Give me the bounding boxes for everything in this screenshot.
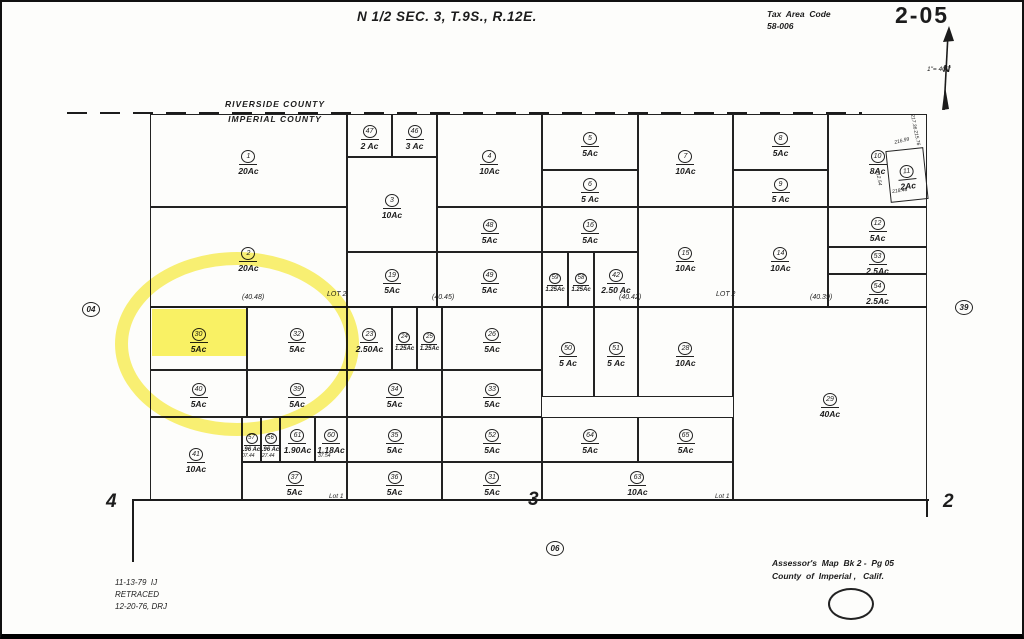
parcel-number: 1 bbox=[241, 150, 255, 163]
parcel-number: 11 bbox=[899, 164, 914, 178]
parcel-acres: 1.90Ac bbox=[284, 445, 311, 455]
parcel-acres: 1.25Ac bbox=[420, 346, 439, 352]
parcel-5: 55Ac bbox=[542, 114, 638, 170]
parcel-acres: 5 Ac bbox=[607, 358, 625, 368]
parcel-number: 15 bbox=[678, 247, 692, 260]
parcel-25: 251.25Ac bbox=[417, 307, 442, 370]
parcel-number: 10 bbox=[871, 150, 885, 163]
parcel-number: 63 bbox=[630, 471, 644, 484]
parcel-number: 37 bbox=[288, 471, 302, 484]
parcel-number: 61 bbox=[290, 429, 304, 442]
parcel-14: 1410Ac bbox=[733, 207, 828, 307]
parcel-acres: 10Ac bbox=[479, 166, 499, 176]
parcel-8: 85Ac bbox=[733, 114, 828, 170]
parcel-number: 36 bbox=[388, 471, 402, 484]
parcel-number: 12 bbox=[871, 217, 885, 230]
map-line bbox=[926, 499, 928, 517]
parcel-acres: 1.25Ac bbox=[571, 287, 590, 293]
parcel-acres: 5Ac bbox=[387, 487, 403, 497]
parcel-acres: 5Ac bbox=[870, 233, 886, 243]
parcel-acres: 5Ac bbox=[287, 487, 303, 497]
parcel-number: 29 bbox=[823, 393, 837, 406]
parcel-number: 23 bbox=[362, 328, 376, 341]
parcel-number: 49 bbox=[483, 269, 497, 282]
highlight-circle bbox=[115, 252, 359, 436]
parcel-64: 645Ac bbox=[542, 417, 638, 462]
parcel-acres: 5Ac bbox=[484, 344, 500, 354]
parcel-acres: 5Ac bbox=[582, 235, 598, 245]
parcel-number: 34 bbox=[388, 383, 402, 396]
parcel-number: 14 bbox=[773, 247, 787, 260]
assessor-map-page: N 1/2 SEC. 3, T.9S., R.12E. Tax Area Cod… bbox=[0, 0, 1024, 639]
parcel-31: 315Ac bbox=[442, 462, 542, 500]
retrace-notes: 11-13-79 IJ RETRACED 12-20-76, DRJ bbox=[115, 577, 167, 613]
parcel-3: 310Ac bbox=[347, 157, 437, 252]
map-label: Lot 1 bbox=[329, 494, 343, 501]
parcel-6: 65 Ac bbox=[542, 170, 638, 207]
parcel-acres: 5Ac bbox=[678, 445, 694, 455]
parcel-number: 16 bbox=[583, 219, 597, 232]
parcel-number: 9 bbox=[774, 178, 788, 191]
parcel-number: 64 bbox=[583, 429, 597, 442]
note-line-2: RETRACED bbox=[115, 590, 159, 599]
map-label: 37.54 bbox=[318, 454, 331, 459]
parcel-number: 42 bbox=[609, 269, 623, 282]
note-line-1: 11-13-79 IJ bbox=[115, 578, 157, 587]
parcel-36: 365Ac bbox=[347, 462, 442, 500]
parcel-number: 31 bbox=[485, 471, 499, 484]
parcel-34: 345Ac bbox=[347, 370, 442, 417]
parcel-48: 485Ac bbox=[437, 207, 542, 252]
parcel-number: 65 bbox=[679, 429, 693, 442]
parcel-number: 28 bbox=[678, 342, 692, 355]
credit-line-1: Assessor's Map Bk 2 - Pg 05 bbox=[772, 558, 894, 568]
parcel-acres: 2.5Ac bbox=[866, 296, 889, 306]
parcel-number: 26 bbox=[485, 328, 499, 341]
parcel-54: 542.5Ac bbox=[828, 274, 927, 307]
parcel-58: 581.25Ac bbox=[568, 252, 594, 307]
parcel-acres: 5Ac bbox=[582, 148, 598, 158]
parcel-number: 7 bbox=[678, 150, 692, 163]
parcel-acres: 5 Ac bbox=[581, 194, 599, 204]
parcel-acres: 10Ac bbox=[186, 464, 206, 474]
parcel-28: 2810Ac bbox=[638, 307, 733, 397]
parcel-acres: 10Ac bbox=[627, 487, 647, 497]
parcel-number: 52 bbox=[485, 429, 499, 442]
parcel-46: 463 Ac bbox=[392, 114, 437, 157]
stamp-ellipse bbox=[828, 588, 874, 620]
parcel-51: 515 Ac bbox=[594, 307, 638, 397]
parcel-63: 6310Ac bbox=[542, 462, 733, 500]
parcel-33: 335Ac bbox=[442, 370, 542, 417]
parcel-number: 46 bbox=[408, 125, 422, 138]
parcel-26: 265Ac bbox=[442, 307, 542, 370]
parcel-acres: 3 Ac bbox=[406, 141, 424, 151]
parcel-acres: 5Ac bbox=[482, 285, 498, 295]
map-label: 27.44 bbox=[262, 454, 275, 459]
parcel-9: 95 Ac bbox=[733, 170, 828, 207]
parcel-number: 59 bbox=[549, 273, 561, 284]
note-line-3: 12-20-76, DRJ bbox=[115, 602, 167, 611]
credit-line-2: County of Imperial , Calif. bbox=[772, 571, 884, 581]
parcel-number: 56 bbox=[265, 433, 277, 444]
map-label: (40.42) bbox=[619, 294, 641, 301]
parcel-number: 24 bbox=[398, 332, 410, 343]
parcel-acres: 10Ac bbox=[382, 210, 402, 220]
parcel-acres: 10Ac bbox=[675, 358, 695, 368]
parcel-number: 35 bbox=[388, 429, 402, 442]
parcel-number: 4 bbox=[482, 150, 496, 163]
parcel-acres: 5Ac bbox=[773, 148, 789, 158]
parcel-53: 532.5Ac bbox=[828, 247, 927, 274]
section-reference-06: 06 bbox=[546, 541, 564, 556]
parcel-number: 51 bbox=[609, 342, 623, 355]
map-line bbox=[132, 499, 134, 562]
parcel-19: 195Ac bbox=[347, 252, 437, 307]
section-reference-39: 39 bbox=[955, 300, 973, 315]
parcel-50: 505 Ac bbox=[542, 307, 594, 397]
map-label: LOT 2 bbox=[716, 291, 735, 298]
parcel-number: 50 bbox=[561, 342, 575, 355]
parcel-16: 165Ac bbox=[542, 207, 638, 252]
map-label: (40.45) bbox=[432, 294, 454, 301]
parcel-acres: 5 Ac bbox=[772, 194, 790, 204]
parcel-number: 58 bbox=[575, 273, 587, 284]
section-reference-04: 04 bbox=[82, 302, 100, 317]
parcel-59: 591.25Ac bbox=[542, 252, 568, 307]
parcel-24: 241.25Ac bbox=[392, 307, 417, 370]
parcel-acres: 40Ac bbox=[820, 409, 840, 419]
parcel-number: 60 bbox=[324, 429, 338, 442]
parcel-number: 48 bbox=[483, 219, 497, 232]
parcel-number: 3 bbox=[385, 194, 399, 207]
map-label: Lot 1 bbox=[715, 494, 729, 501]
parcel-12: 125Ac bbox=[828, 207, 927, 247]
parcel-65: 655Ac bbox=[638, 417, 733, 462]
parcel-acres: 1.25Ac bbox=[545, 287, 564, 293]
parcel-acres: 5Ac bbox=[484, 399, 500, 409]
parcel-acres: 5Ac bbox=[387, 399, 403, 409]
parcel-7: 710Ac bbox=[638, 114, 733, 207]
map-label: 07.44 bbox=[242, 454, 255, 459]
parcel-acres: 10Ac bbox=[675, 166, 695, 176]
parcel-number: 25 bbox=[423, 332, 435, 343]
parcel-acres: 2 Ac bbox=[361, 141, 379, 151]
parcel-29: 2940Ac bbox=[733, 307, 927, 500]
assessor-credit: Assessor's Map Bk 2 - Pg 05 County of Im… bbox=[772, 557, 894, 583]
parcel-acres: 10Ac bbox=[770, 263, 790, 273]
parcel-number: 41 bbox=[189, 448, 203, 461]
parcel-4: 410Ac bbox=[437, 114, 542, 207]
parcel-number: 47 bbox=[363, 125, 377, 138]
parcel-number: 54 bbox=[871, 280, 885, 293]
map-label: 3 bbox=[528, 490, 539, 509]
parcel-acres: 1.25Ac bbox=[395, 346, 414, 352]
parcel-acres: 5Ac bbox=[384, 285, 400, 295]
parcel-acres: 5Ac bbox=[387, 445, 403, 455]
map-label: 4 bbox=[106, 492, 117, 511]
parcel-35: 355Ac bbox=[347, 417, 442, 462]
parcel-acres: 10Ac bbox=[675, 263, 695, 273]
parcel-number: 19 bbox=[385, 269, 399, 282]
parcel-acres: 5Ac bbox=[482, 235, 498, 245]
parcel-47: 472 Ac bbox=[347, 114, 392, 157]
parcel-acres: 5Ac bbox=[484, 445, 500, 455]
parcel-number: 53 bbox=[871, 250, 885, 263]
parcel-acres: 5Ac bbox=[582, 445, 598, 455]
parcel-acres: 5Ac bbox=[484, 487, 500, 497]
parcel-acres: 2.50Ac bbox=[356, 344, 383, 354]
map-label: (40.39) bbox=[810, 294, 832, 301]
parcel-1: 120Ac bbox=[150, 114, 347, 207]
parcel-number: 5 bbox=[583, 132, 597, 145]
parcel-number: 8 bbox=[774, 132, 788, 145]
map-label: 2 bbox=[943, 492, 954, 511]
parcel-number: 33 bbox=[485, 383, 499, 396]
parcel-acres: 5 Ac bbox=[559, 358, 577, 368]
parcel-52: 525Ac bbox=[442, 417, 542, 462]
parcel-acres: 20Ac bbox=[238, 166, 258, 176]
parcel-number: 6 bbox=[583, 178, 597, 191]
